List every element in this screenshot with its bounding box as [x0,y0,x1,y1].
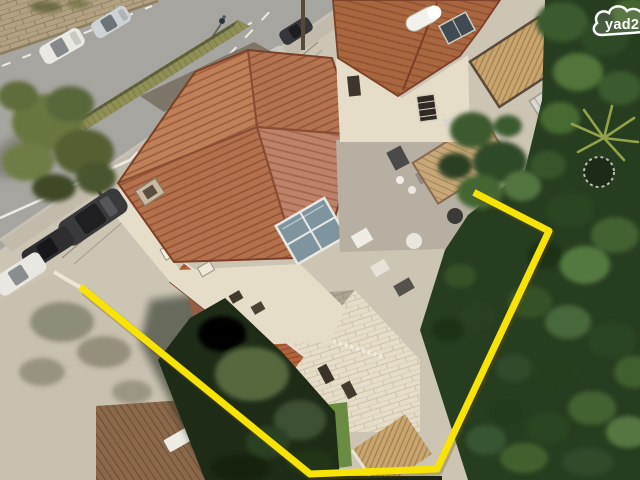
trampoline [584,157,614,187]
wall-vines [30,1,62,13]
round-table [406,233,422,249]
white-chair [396,176,404,184]
window [347,75,361,96]
yad2-watermark-logo: yad2 [594,6,640,35]
barred-window [416,94,437,122]
aerial-photo-canvas: yad2 [0,0,640,480]
listing-photo: yad2 [0,0,640,480]
watermark-text: yad2 [605,17,639,33]
